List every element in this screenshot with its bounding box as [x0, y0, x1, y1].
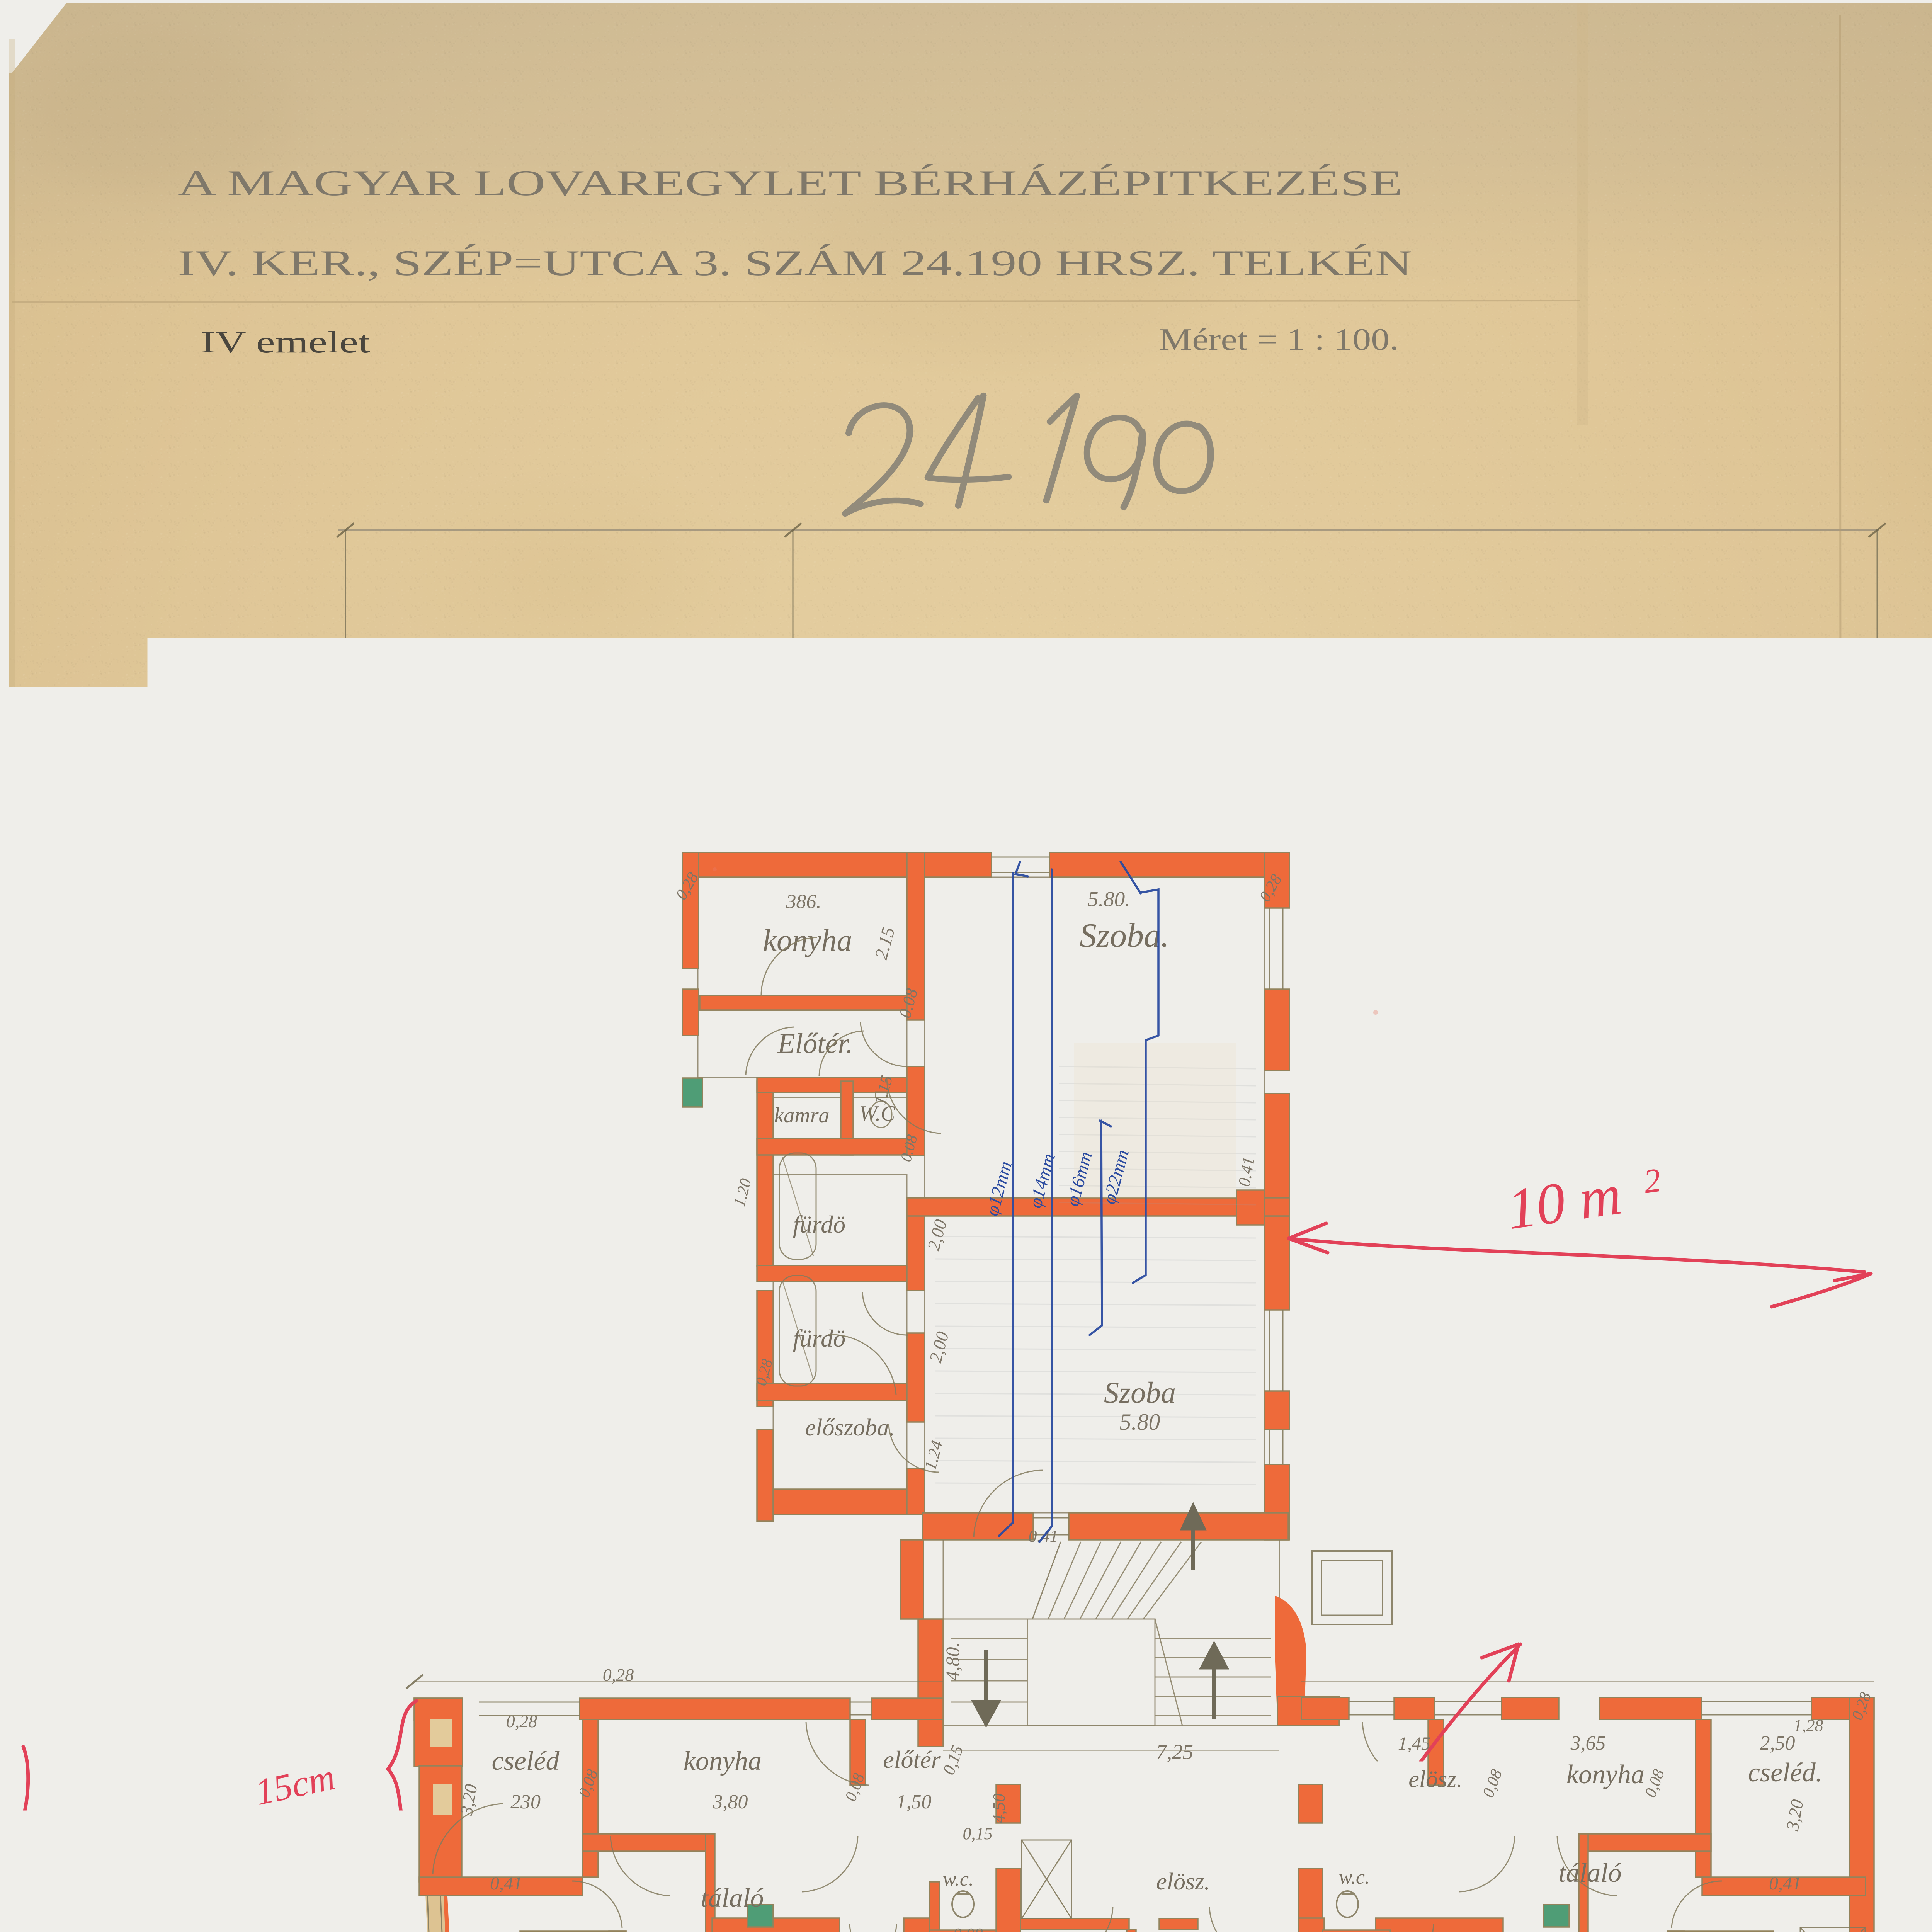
svg-text:386.: 386. [786, 891, 821, 913]
svg-text:0,41: 0,41 [490, 1873, 522, 1894]
svg-text:5.80: 5.80 [1120, 1409, 1160, 1435]
svg-text:cseléd: cseléd [492, 1746, 560, 1776]
svg-text:0,28: 0,28 [603, 1665, 634, 1685]
svg-text:előtér: előtér [883, 1746, 941, 1773]
svg-text:Szoba.: Szoba. [1080, 917, 1169, 954]
svg-text:2,50: 2,50 [1760, 1732, 1795, 1754]
svg-text:3,65: 3,65 [1570, 1732, 1606, 1754]
svg-text:w.c.: w.c. [1339, 1866, 1370, 1888]
svg-text:tálaló: tálaló [1558, 1858, 1621, 1888]
svg-text:tálaló: tálaló [701, 1883, 764, 1913]
svg-text:cseléd.: cseléd. [1748, 1758, 1822, 1787]
svg-text:konyha: konyha [1566, 1760, 1645, 1789]
svg-text:5.80.: 5.80. [1088, 887, 1130, 911]
svg-text:konyha: konyha [763, 923, 852, 957]
svg-text:3,80: 3,80 [713, 1791, 748, 1813]
svg-text:MÉRNÖKI IRODA: MÉRNÖKI IRODA [458, 1086, 488, 1360]
svg-text:230: 230 [510, 1791, 541, 1813]
svg-text:0.41: 0.41 [1244, 823, 1277, 844]
svg-text:10.00: 10.00 [961, 770, 1009, 794]
svg-text:600: 600 [759, 687, 779, 715]
svg-text:Szoba: Szoba [1104, 1376, 1176, 1409]
svg-text:0,41: 0,41 [1769, 1873, 1801, 1894]
svg-text:1,45: 1,45 [1398, 1733, 1430, 1754]
svg-text:IV. KER., SZÉP=UTCA 3. SZÁM 24: IV. KER., SZÉP=UTCA 3. SZÁM 24.190 HRSZ.… [178, 243, 1412, 283]
svg-text:elösz.: elösz. [1156, 1869, 1210, 1895]
svg-text:w.c.: w.c. [943, 1868, 974, 1890]
svg-text:konyha: konyha [684, 1746, 762, 1776]
svg-text:0,15: 0,15 [963, 1824, 993, 1843]
svg-text:kamra: kamra [774, 1104, 829, 1128]
svg-text:4,50: 4,50 [990, 1794, 1009, 1823]
svg-text:A MAGYAR LOVAREGYLET BÉRHÁZÉPI: A MAGYAR LOVAREGYLET BÉRHÁZÉPITKEZÉSE [178, 163, 1403, 203]
svg-text:0.41: 0.41 [911, 823, 944, 844]
svg-text:3.: 3. [541, 1229, 571, 1252]
svg-text:0,08: 0,08 [953, 1925, 983, 1932]
svg-text:TERVTÁRÁNAK példány: TERVTÁRÁNAK példány [509, 1022, 538, 1424]
svg-text:0,28: 0,28 [506, 1711, 537, 1731]
svg-text:Méret = 1 : 100.: Méret = 1 : 100. [1159, 323, 1399, 357]
svg-text:előszoba.: előszoba. [805, 1415, 895, 1441]
svg-text:7,25: 7,25 [1156, 1740, 1193, 1764]
svg-text:4,80.: 4,80. [942, 1642, 963, 1681]
svg-text:A Fővárosi Ü. kormányzat: A Fővárosi Ü. kormányzat [413, 1024, 442, 1422]
svg-text:1,28: 1,28 [1794, 1716, 1823, 1735]
svg-text:1,50: 1,50 [896, 1791, 932, 1813]
svg-text:Előtér.: Előtér. [777, 1028, 853, 1060]
svg-text:IV emelet: IV emelet [201, 325, 370, 359]
